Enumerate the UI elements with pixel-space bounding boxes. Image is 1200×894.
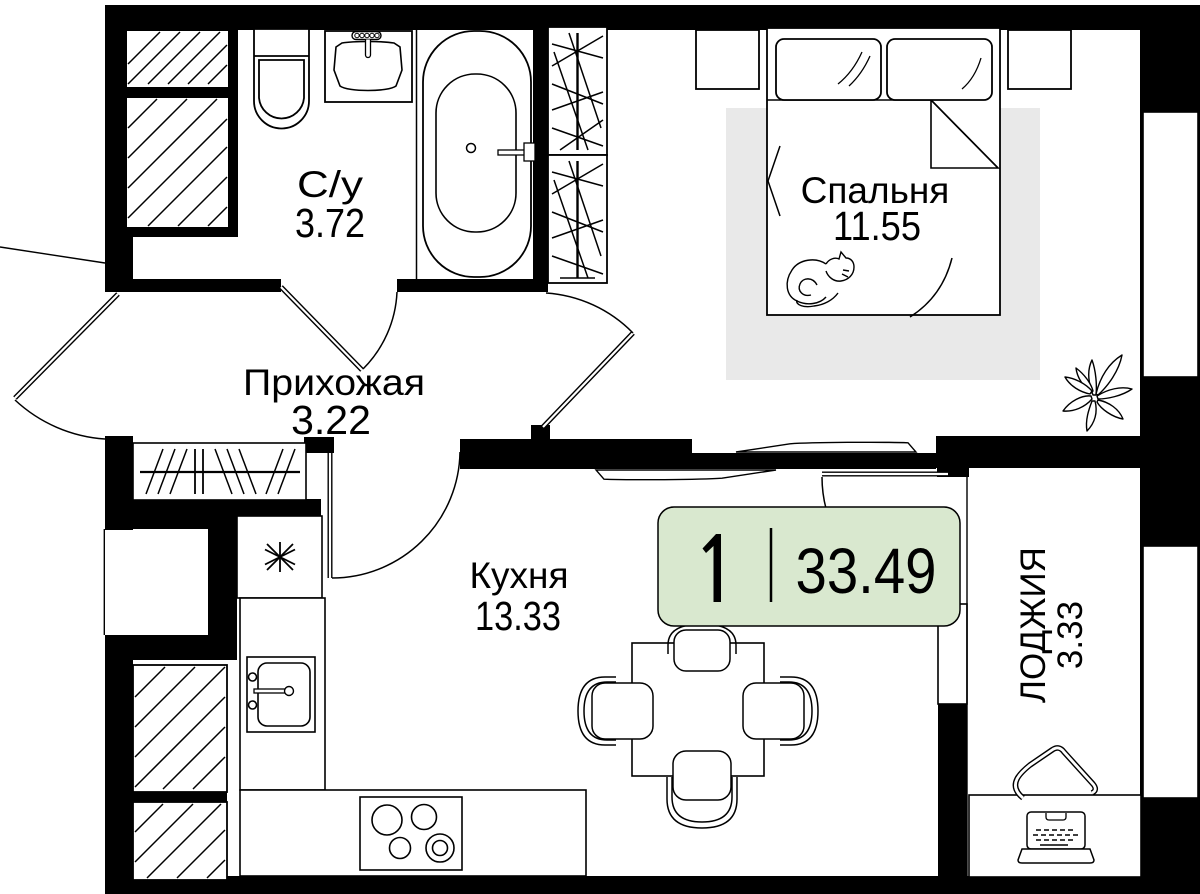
svg-text:ЛОДЖИЯ: ЛОДЖИЯ	[1014, 547, 1053, 703]
svg-text:13.33: 13.33	[475, 593, 561, 639]
svg-text:Кухня: Кухня	[469, 555, 568, 596]
svg-text:3.33: 3.33	[1051, 601, 1090, 669]
svg-text:33.49: 33.49	[796, 535, 937, 607]
svg-text:3.72: 3.72	[295, 200, 365, 246]
svg-text:С/у: С/у	[297, 164, 364, 205]
svg-text:11.55: 11.55	[833, 203, 921, 249]
svg-text:3.22: 3.22	[291, 397, 371, 443]
